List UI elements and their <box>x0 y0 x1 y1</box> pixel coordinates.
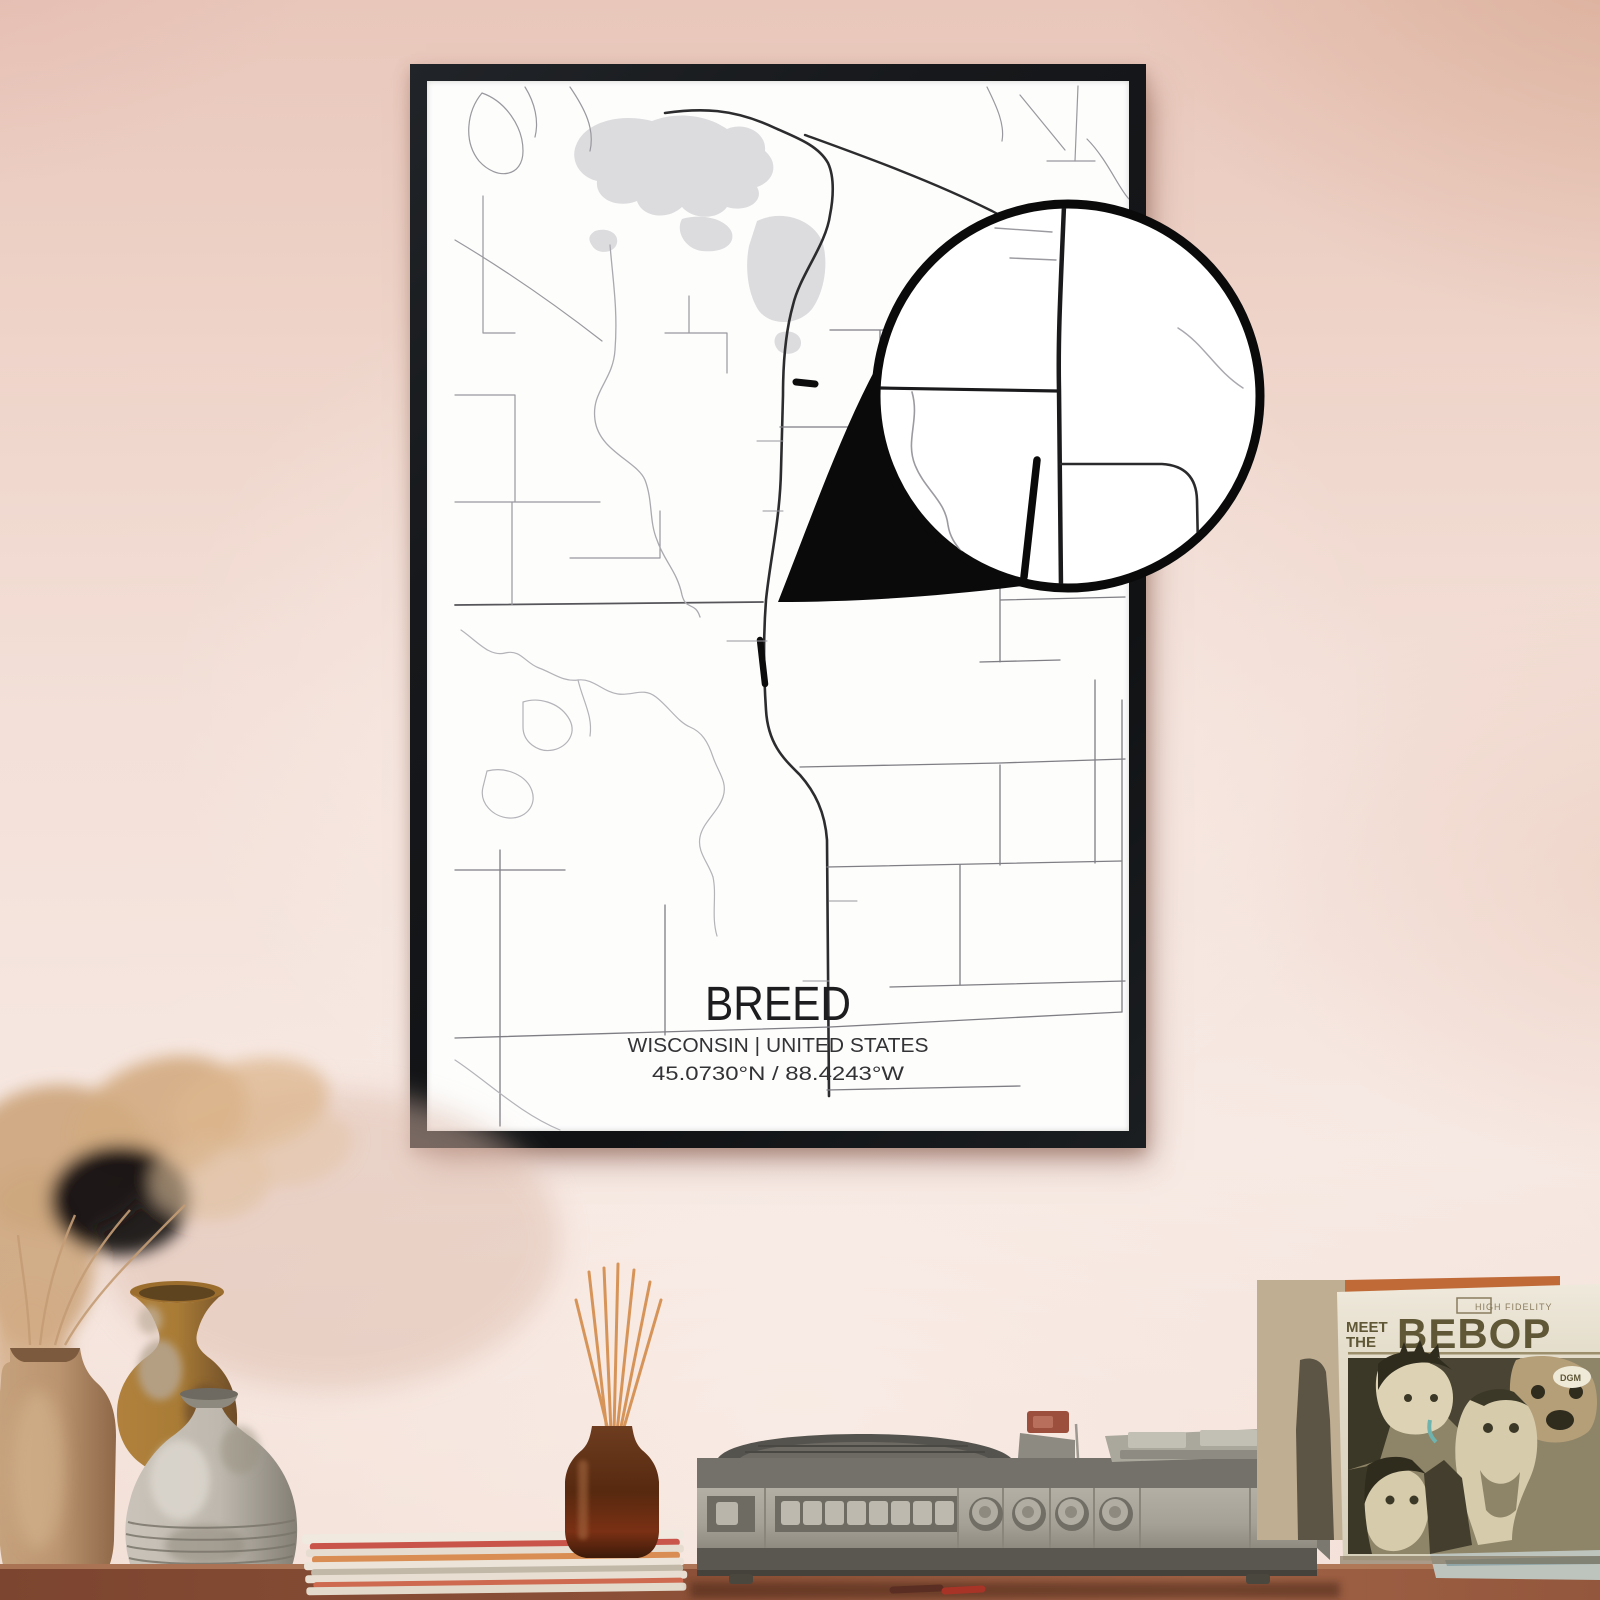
svg-text:THE: THE <box>1346 1334 1376 1351</box>
svg-text:DGM: DGM <box>1560 1373 1581 1383</box>
